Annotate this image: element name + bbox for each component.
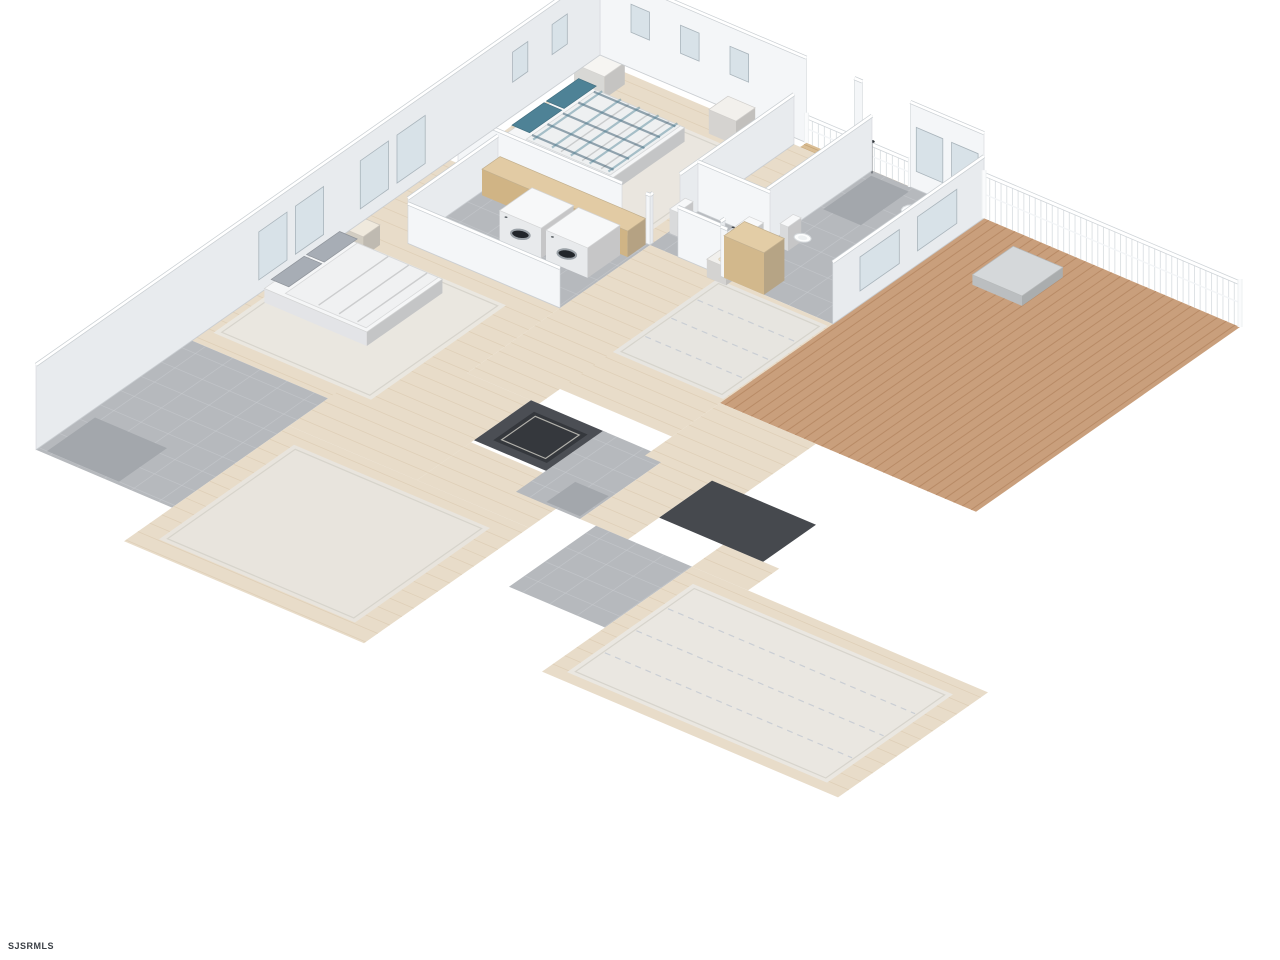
balcony-b-curtain <box>898 98 904 146</box>
floorplan-3d-scene <box>0 0 1280 960</box>
balcony-b-curtain <box>872 87 878 135</box>
small-bath-toilet <box>670 209 678 236</box>
wall-bedroom-top-east-b <box>650 193 653 245</box>
balcony-b-curtain <box>881 90 887 138</box>
balcony-a-curtain <box>825 67 831 115</box>
balcony-a-curtain <box>842 74 848 122</box>
balcony-b-curtain <box>890 94 896 142</box>
watermark-text: SJSRMLS <box>8 941 54 951</box>
balcony-a-curtain <box>807 59 813 107</box>
balcony-a-curtain <box>816 63 822 111</box>
wall-bedroom-top-south-b <box>646 193 650 245</box>
floorplan-render: SJSRMLS <box>0 0 1280 960</box>
balcony-a-curtain <box>834 70 840 118</box>
